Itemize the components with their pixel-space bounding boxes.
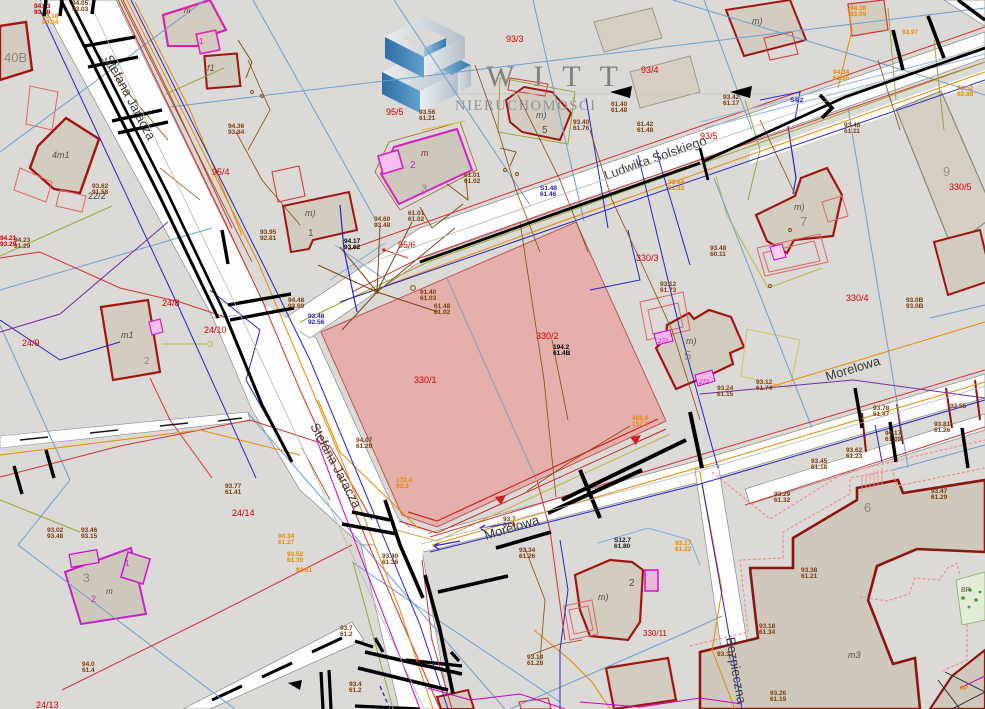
svg-text:24/8: 24/8 bbox=[162, 298, 180, 308]
svg-text:93/4: 93/4 bbox=[641, 65, 659, 75]
svg-text:93.8161.26: 93.8161.26 bbox=[934, 421, 951, 434]
svg-text:93.97: 93.97 bbox=[902, 29, 919, 36]
svg-text:2: 2 bbox=[410, 160, 416, 171]
svg-text:93.1761.22: 93.1761.22 bbox=[675, 540, 692, 553]
svg-text:f1: f1 bbox=[207, 63, 215, 73]
svg-text:93.1261.73: 93.1261.73 bbox=[660, 281, 677, 294]
svg-text:m: m bbox=[106, 587, 113, 596]
svg-text:93.6261.23: 93.6261.23 bbox=[846, 447, 863, 460]
svg-text:61.0161.02: 61.0161.02 bbox=[408, 210, 425, 223]
svg-text:330/4: 330/4 bbox=[846, 293, 869, 303]
svg-text:93.4561.18: 93.4561.18 bbox=[811, 458, 828, 471]
svg-text:24/10: 24/10 bbox=[204, 325, 227, 335]
svg-text:1: 1 bbox=[125, 559, 130, 568]
svg-text:272: 272 bbox=[698, 380, 710, 386]
svg-text:93.4861.11: 93.4861.11 bbox=[844, 122, 861, 135]
svg-text:94.061.4: 94.061.4 bbox=[82, 661, 95, 674]
svg-text:93.2461.15: 93.2461.15 bbox=[717, 385, 734, 398]
svg-text:93.7761.41: 93.7761.41 bbox=[225, 483, 242, 496]
svg-text:330/3: 330/3 bbox=[636, 253, 659, 263]
svg-text:WITT: WITT bbox=[486, 60, 637, 93]
svg-text:330/5: 330/5 bbox=[949, 182, 972, 192]
svg-text:93.761.2: 93.761.2 bbox=[340, 625, 353, 638]
svg-text:9: 9 bbox=[943, 164, 950, 179]
svg-text:94.3693.84: 94.3693.84 bbox=[228, 123, 245, 136]
svg-text:95/4: 95/4 bbox=[212, 167, 230, 177]
svg-text:61.4061.03: 61.4061.03 bbox=[420, 289, 437, 302]
svg-text:94.1761.09: 94.1761.09 bbox=[885, 430, 902, 443]
svg-text:93.2961.32: 93.2961.32 bbox=[774, 491, 791, 504]
svg-text:93.4860.11: 93.4860.11 bbox=[710, 245, 727, 258]
svg-text:94.0593.03: 94.0593.03 bbox=[72, 0, 89, 13]
svg-text:m: m bbox=[421, 148, 429, 158]
svg-text:94.3461.55: 94.3461.55 bbox=[833, 69, 850, 82]
svg-text:2: 2 bbox=[629, 578, 635, 589]
svg-text:94.3461.27: 94.3461.27 bbox=[278, 533, 295, 546]
svg-text:m): m) bbox=[794, 202, 805, 212]
svg-text:2: 2 bbox=[144, 356, 150, 367]
svg-text:94.1793.62: 94.1793.62 bbox=[344, 238, 361, 251]
svg-text:2: 2 bbox=[91, 594, 96, 604]
svg-text:40B: 40B bbox=[4, 50, 27, 65]
svg-text:93.7861.47: 93.7861.47 bbox=[873, 405, 890, 418]
svg-text:93.6461.33: 93.6461.33 bbox=[668, 179, 685, 192]
svg-text:93.4261.17: 93.4261.17 bbox=[723, 94, 740, 107]
svg-text:93.5261.30: 93.5261.30 bbox=[287, 551, 304, 564]
svg-text:94.2391.29: 94.2391.29 bbox=[14, 237, 31, 250]
svg-text:24/9: 24/9 bbox=[22, 338, 40, 348]
svg-text:93.1861.34: 93.1861.34 bbox=[759, 623, 776, 636]
svg-text:330/11: 330/11 bbox=[643, 629, 667, 638]
svg-text:94.2193.29: 94.2193.29 bbox=[0, 235, 17, 248]
svg-text:93.4061.36: 93.4061.36 bbox=[382, 553, 399, 566]
svg-text:61.4061.48: 61.4061.48 bbox=[611, 101, 628, 114]
svg-text:m): m) bbox=[686, 336, 697, 346]
svg-text:m): m) bbox=[305, 208, 316, 218]
svg-text:1: 1 bbox=[308, 228, 314, 239]
svg-text:93.0B93.0B: 93.0B93.0B bbox=[906, 297, 924, 310]
svg-text:7: 7 bbox=[800, 214, 807, 229]
svg-text:93.9592.81: 93.9592.81 bbox=[260, 229, 277, 242]
svg-text:93.3461.26: 93.3461.26 bbox=[519, 547, 536, 560]
svg-text:3: 3 bbox=[421, 183, 427, 195]
svg-text:m: m bbox=[184, 6, 191, 15]
svg-text:93.1261.74: 93.1261.74 bbox=[756, 379, 773, 392]
svg-text:94.6093.48: 94.6093.48 bbox=[374, 216, 391, 229]
svg-text:93.3861.21: 93.3861.21 bbox=[801, 567, 818, 580]
svg-text:61.0161.02: 61.0161.02 bbox=[464, 172, 481, 185]
svg-text:m3: m3 bbox=[848, 650, 861, 660]
svg-text:S1.4861.46: S1.4861.46 bbox=[540, 185, 557, 198]
svg-text:5: 5 bbox=[684, 348, 691, 363]
svg-text:93.0293.48: 93.0293.48 bbox=[47, 527, 64, 540]
svg-text:95/6: 95/6 bbox=[398, 240, 416, 250]
svg-text:m): m) bbox=[752, 16, 763, 26]
svg-text:24/14: 24/14 bbox=[232, 508, 255, 518]
svg-text:93.61: 93.61 bbox=[296, 567, 313, 574]
svg-text:24/13: 24/13 bbox=[36, 700, 59, 709]
svg-text:93.4061.76: 93.4061.76 bbox=[573, 119, 590, 132]
svg-text:8P: 8P bbox=[960, 685, 969, 692]
svg-text:4m1: 4m1 bbox=[52, 150, 70, 160]
svg-text:61.4861.02: 61.4861.02 bbox=[434, 303, 451, 316]
svg-text:93/3: 93/3 bbox=[506, 34, 524, 44]
svg-text:488.4157.1: 488.4157.1 bbox=[632, 415, 649, 428]
svg-text:S12.761.80: S12.761.80 bbox=[614, 537, 631, 550]
svg-text:93.5661.21: 93.5661.21 bbox=[419, 109, 436, 122]
svg-text:95/5: 95/5 bbox=[386, 107, 404, 117]
svg-text:93.461.2: 93.461.2 bbox=[349, 681, 362, 694]
svg-text:330/1: 330/1 bbox=[414, 375, 437, 385]
svg-text:5: 5 bbox=[542, 125, 548, 136]
svg-text:93.4761.29: 93.4761.29 bbox=[931, 488, 948, 501]
svg-text:330/2: 330/2 bbox=[536, 331, 559, 341]
svg-text:94.3893.09: 94.3893.09 bbox=[850, 5, 867, 18]
svg-text:93.761.0: 93.761.0 bbox=[503, 516, 516, 529]
svg-text:S4.2: S4.2 bbox=[790, 97, 804, 104]
svg-text:93.55: 93.55 bbox=[950, 403, 967, 410]
svg-text:m): m) bbox=[536, 110, 547, 120]
svg-text:93.2661.19: 93.2661.19 bbox=[770, 690, 787, 703]
svg-text:m1: m1 bbox=[121, 330, 134, 340]
svg-text:93.32: 93.32 bbox=[717, 651, 734, 658]
svg-text:93.6291.58: 93.6291.58 bbox=[92, 183, 109, 196]
svg-text:3: 3 bbox=[83, 571, 90, 585]
svg-text:94.4893.69: 94.4893.69 bbox=[288, 297, 305, 310]
svg-text:194.261.4B: 194.261.4B bbox=[553, 344, 571, 357]
svg-text:61.4261.48: 61.4261.48 bbox=[637, 121, 654, 134]
svg-text:272: 272 bbox=[657, 339, 669, 345]
svg-text:94.0761.29: 94.0761.29 bbox=[356, 437, 373, 450]
svg-text:1: 1 bbox=[199, 37, 204, 46]
svg-text:6: 6 bbox=[864, 500, 871, 515]
svg-text:BP: BP bbox=[961, 587, 971, 594]
svg-text:93.4892.56: 93.4892.56 bbox=[308, 313, 325, 326]
svg-text:m): m) bbox=[598, 592, 609, 602]
svg-text:93.1461.28: 93.1461.28 bbox=[527, 654, 544, 667]
svg-text:93.4693.15: 93.4693.15 bbox=[81, 527, 98, 540]
svg-text:93.5292.88: 93.5292.88 bbox=[957, 85, 974, 98]
svg-text:93/5: 93/5 bbox=[700, 131, 718, 141]
